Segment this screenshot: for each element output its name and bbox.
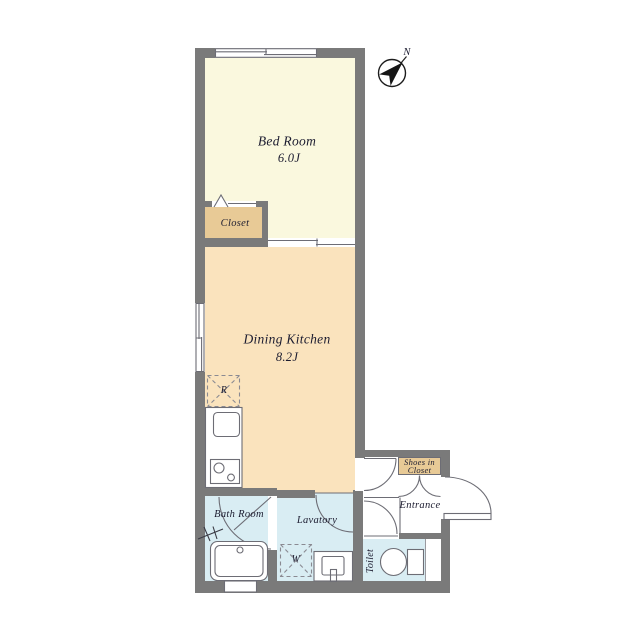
front-door-icon [444,477,491,520]
bedroom-size-label: 6.0J [278,152,300,165]
faucet-icon [198,527,223,542]
floor-plan: Shoes in Closet [0,0,640,640]
lavatory-label: Lavatory [297,516,337,527]
north-label: N [403,48,410,59]
kitchen-counter-icon [206,408,243,488]
north-compass-icon [379,57,407,87]
toilet-label: Toilet [366,549,376,573]
entrance-label: Entrance [400,501,441,512]
washing-machine-symbol: W [292,555,301,565]
plan-linework [0,0,640,640]
window-icon [215,49,317,58]
dining-kitchen-size-label: 8.2J [276,351,298,364]
refrigerator-symbol: R [221,386,227,396]
bathtub-icon [211,542,268,593]
bedroom-label: Bed Room [258,134,316,148]
door-arc [364,498,400,537]
closet-label: Closet [221,219,250,230]
window-icon [196,303,204,372]
sliding-door-icon [268,239,355,247]
cabinet-door-arcs [399,476,441,497]
folding-door-icon [214,195,256,207]
bath-room-label: Bath Room [214,510,264,521]
dining-kitchen-label: Dining Kitchen [243,332,330,346]
washbasin-icon [314,552,353,582]
door-arc [364,459,396,491]
toilet-icon [381,549,424,576]
